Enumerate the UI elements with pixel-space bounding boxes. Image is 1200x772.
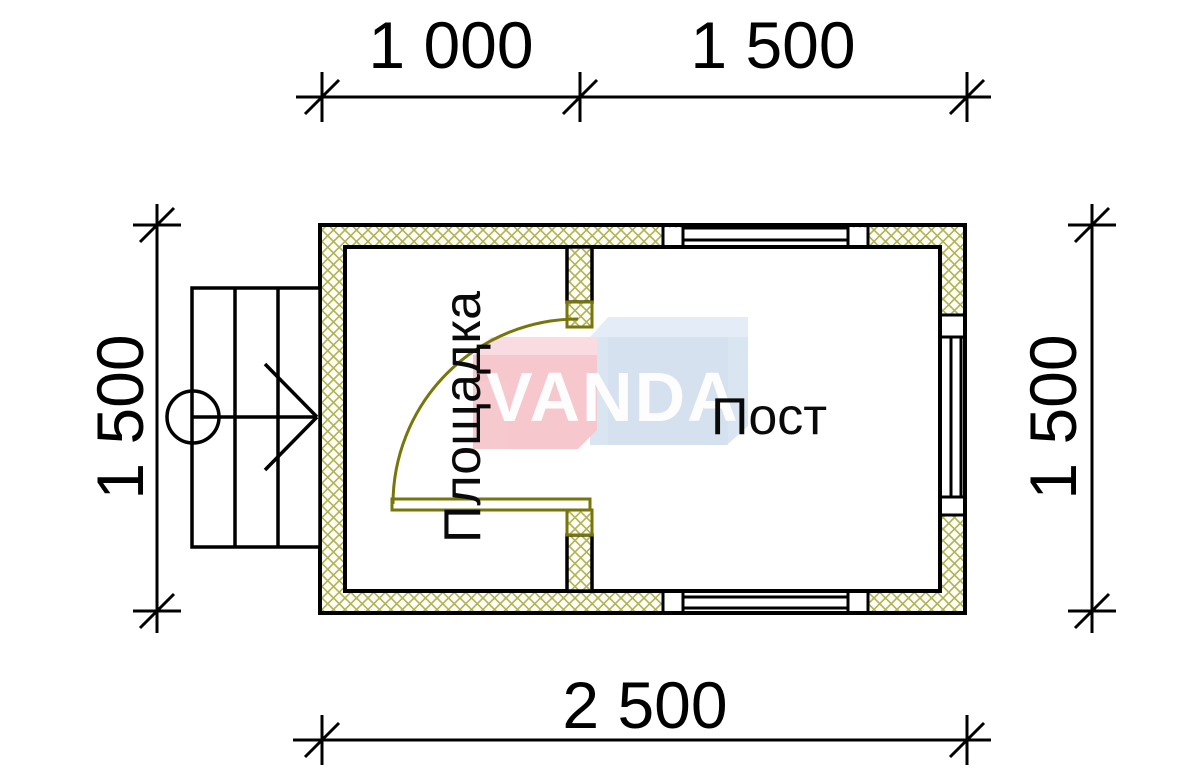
dimension-label-top-left: 1 000: [368, 12, 533, 78]
dimension-label-left: 1 500: [87, 334, 153, 499]
dimension-label-top-right: 1 500: [690, 12, 855, 78]
room-label-post: Пост: [711, 391, 827, 443]
dimension-label-bottom: 2 500: [562, 672, 727, 738]
room-label-ploshchadka: Площадка: [437, 291, 489, 543]
floor-plan-canvas: 1 000 1 500 1 500 1 500 2 500 VANDA Площ…: [0, 0, 1200, 772]
window-right: [940, 315, 965, 515]
window-top: [662, 225, 869, 247]
entrance-steps: [167, 288, 320, 547]
watermark-text: VANDA: [486, 362, 740, 432]
dimension-label-right: 1 500: [1020, 334, 1086, 499]
window-bottom: [662, 591, 869, 613]
